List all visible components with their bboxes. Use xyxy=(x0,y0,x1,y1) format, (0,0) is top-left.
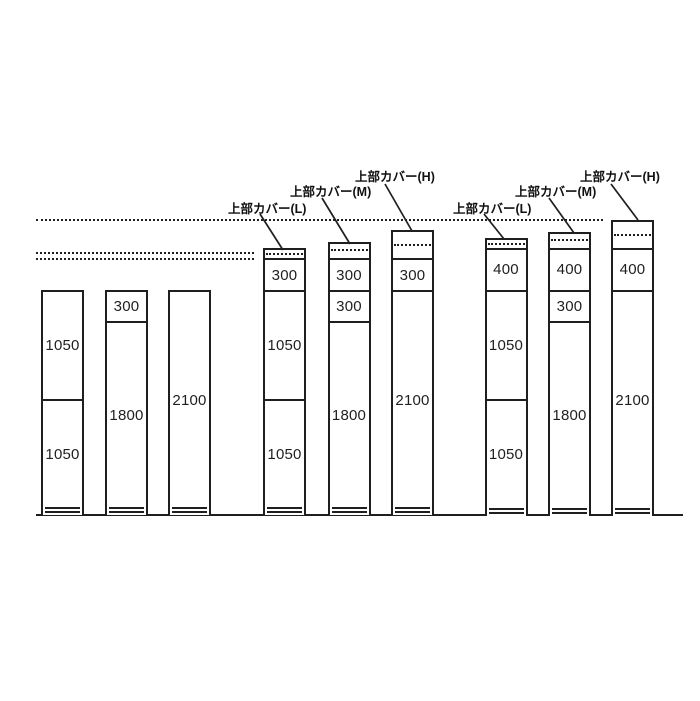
section-height-value: 400 xyxy=(620,261,646,278)
height-section-300mm: 300 xyxy=(107,292,146,323)
height-section-300mm: 300 xyxy=(330,292,369,323)
height-section-1050mm: 1050 xyxy=(487,292,526,401)
cover-adjust-dotted-line xyxy=(266,253,303,255)
cover-label-L: 上部カバー(L) xyxy=(453,198,531,217)
height-section-400mm: 400 xyxy=(613,250,652,292)
cabinet-column-2: 3001800 xyxy=(105,290,148,516)
top-cover-H xyxy=(393,232,432,261)
cabinet-column-4-cover-L: 30010501050 xyxy=(263,248,306,515)
cabinet-column-9-cover-H: 4002100 xyxy=(611,220,654,516)
cabinet-column-5-cover-M: 3003001800 xyxy=(328,242,371,515)
cover-label-H: 上部カバー(H) xyxy=(355,166,435,185)
cover-adjust-dotted-line xyxy=(394,244,431,246)
cover-label-H: 上部カバー(H) xyxy=(580,166,660,185)
section-height-value: 2100 xyxy=(172,392,206,409)
cabinet-column-8-cover-M: 4003001800 xyxy=(548,232,591,516)
section-height-value: 1800 xyxy=(109,407,143,424)
cover-adjust-dotted-line xyxy=(551,239,588,241)
top-cover-M xyxy=(550,234,589,250)
base-plinth xyxy=(615,508,650,514)
section-height-value: 2100 xyxy=(615,392,649,409)
top-cover-H xyxy=(613,222,652,251)
height-guide-dotted-line-3 xyxy=(36,258,254,260)
height-section-300mm: 300 xyxy=(330,260,369,291)
top-cover-L xyxy=(265,250,304,260)
height-section-400mm: 400 xyxy=(487,250,526,292)
height-section-1800mm: 1800 xyxy=(107,323,146,509)
height-section-1800mm: 1800 xyxy=(550,323,589,509)
section-height-value: 300 xyxy=(114,298,140,315)
section-height-value: 300 xyxy=(336,298,362,315)
section-height-value: 400 xyxy=(557,261,583,278)
section-height-value: 300 xyxy=(336,267,362,284)
height-guide-dotted-line-2 xyxy=(36,252,254,254)
section-height-value: 300 xyxy=(557,298,583,315)
section-height-value: 300 xyxy=(272,267,298,284)
cabinet-column-1: 10501050 xyxy=(41,290,84,516)
height-section-400mm: 400 xyxy=(550,250,589,292)
height-section-1800mm: 1800 xyxy=(330,323,369,509)
base-plinth xyxy=(489,508,524,514)
height-section-300mm: 300 xyxy=(265,260,304,291)
base-plinth xyxy=(172,507,207,513)
base-plinth xyxy=(332,507,367,513)
cabinet-column-7-cover-L: 40010501050 xyxy=(485,238,528,516)
section-height-value: 1050 xyxy=(45,446,79,463)
height-section-300mm: 300 xyxy=(550,292,589,323)
section-height-value: 400 xyxy=(493,261,519,278)
section-height-value: 1050 xyxy=(489,446,523,463)
top-cover-M xyxy=(330,244,369,260)
height-guide-dotted-line-1 xyxy=(36,219,603,221)
cover-adjust-dotted-line xyxy=(488,243,525,245)
leader-line-H xyxy=(385,184,412,231)
section-height-value: 1800 xyxy=(332,407,366,424)
base-plinth xyxy=(267,507,302,513)
cabinet-column-6-cover-H: 3002100 xyxy=(391,230,434,516)
height-section-1050mm: 1050 xyxy=(487,401,526,508)
height-section-1050mm: 1050 xyxy=(265,401,304,508)
height-section-1050mm: 1050 xyxy=(265,292,304,401)
base-plinth xyxy=(45,507,80,513)
cover-adjust-dotted-line xyxy=(614,234,651,236)
section-height-value: 1050 xyxy=(267,337,301,354)
height-section-300mm: 300 xyxy=(393,260,432,291)
height-section-1050mm: 1050 xyxy=(43,292,82,401)
cover-adjust-dotted-line xyxy=(331,249,368,251)
height-section-2100mm: 2100 xyxy=(393,292,432,509)
cabinet-column-3: 2100 xyxy=(168,290,211,516)
cabinet-height-diagram: 1050105030018002100300105010503003001800… xyxy=(0,0,700,701)
base-plinth xyxy=(109,507,144,513)
section-height-value: 300 xyxy=(400,267,426,284)
section-height-value: 1050 xyxy=(267,446,301,463)
section-height-value: 1050 xyxy=(45,337,79,354)
section-height-value: 1050 xyxy=(489,337,523,354)
leader-line-M xyxy=(549,198,574,233)
leader-line-M xyxy=(322,198,350,244)
section-height-value: 1800 xyxy=(552,407,586,424)
base-plinth xyxy=(552,508,587,514)
height-section-1050mm: 1050 xyxy=(43,401,82,508)
height-section-2100mm: 2100 xyxy=(613,292,652,509)
section-height-value: 2100 xyxy=(395,392,429,409)
leader-line-H xyxy=(611,184,638,220)
height-section-2100mm: 2100 xyxy=(170,292,209,509)
base-plinth xyxy=(395,507,430,513)
cover-label-L: 上部カバー(L) xyxy=(228,198,306,217)
top-cover-L xyxy=(487,240,526,250)
